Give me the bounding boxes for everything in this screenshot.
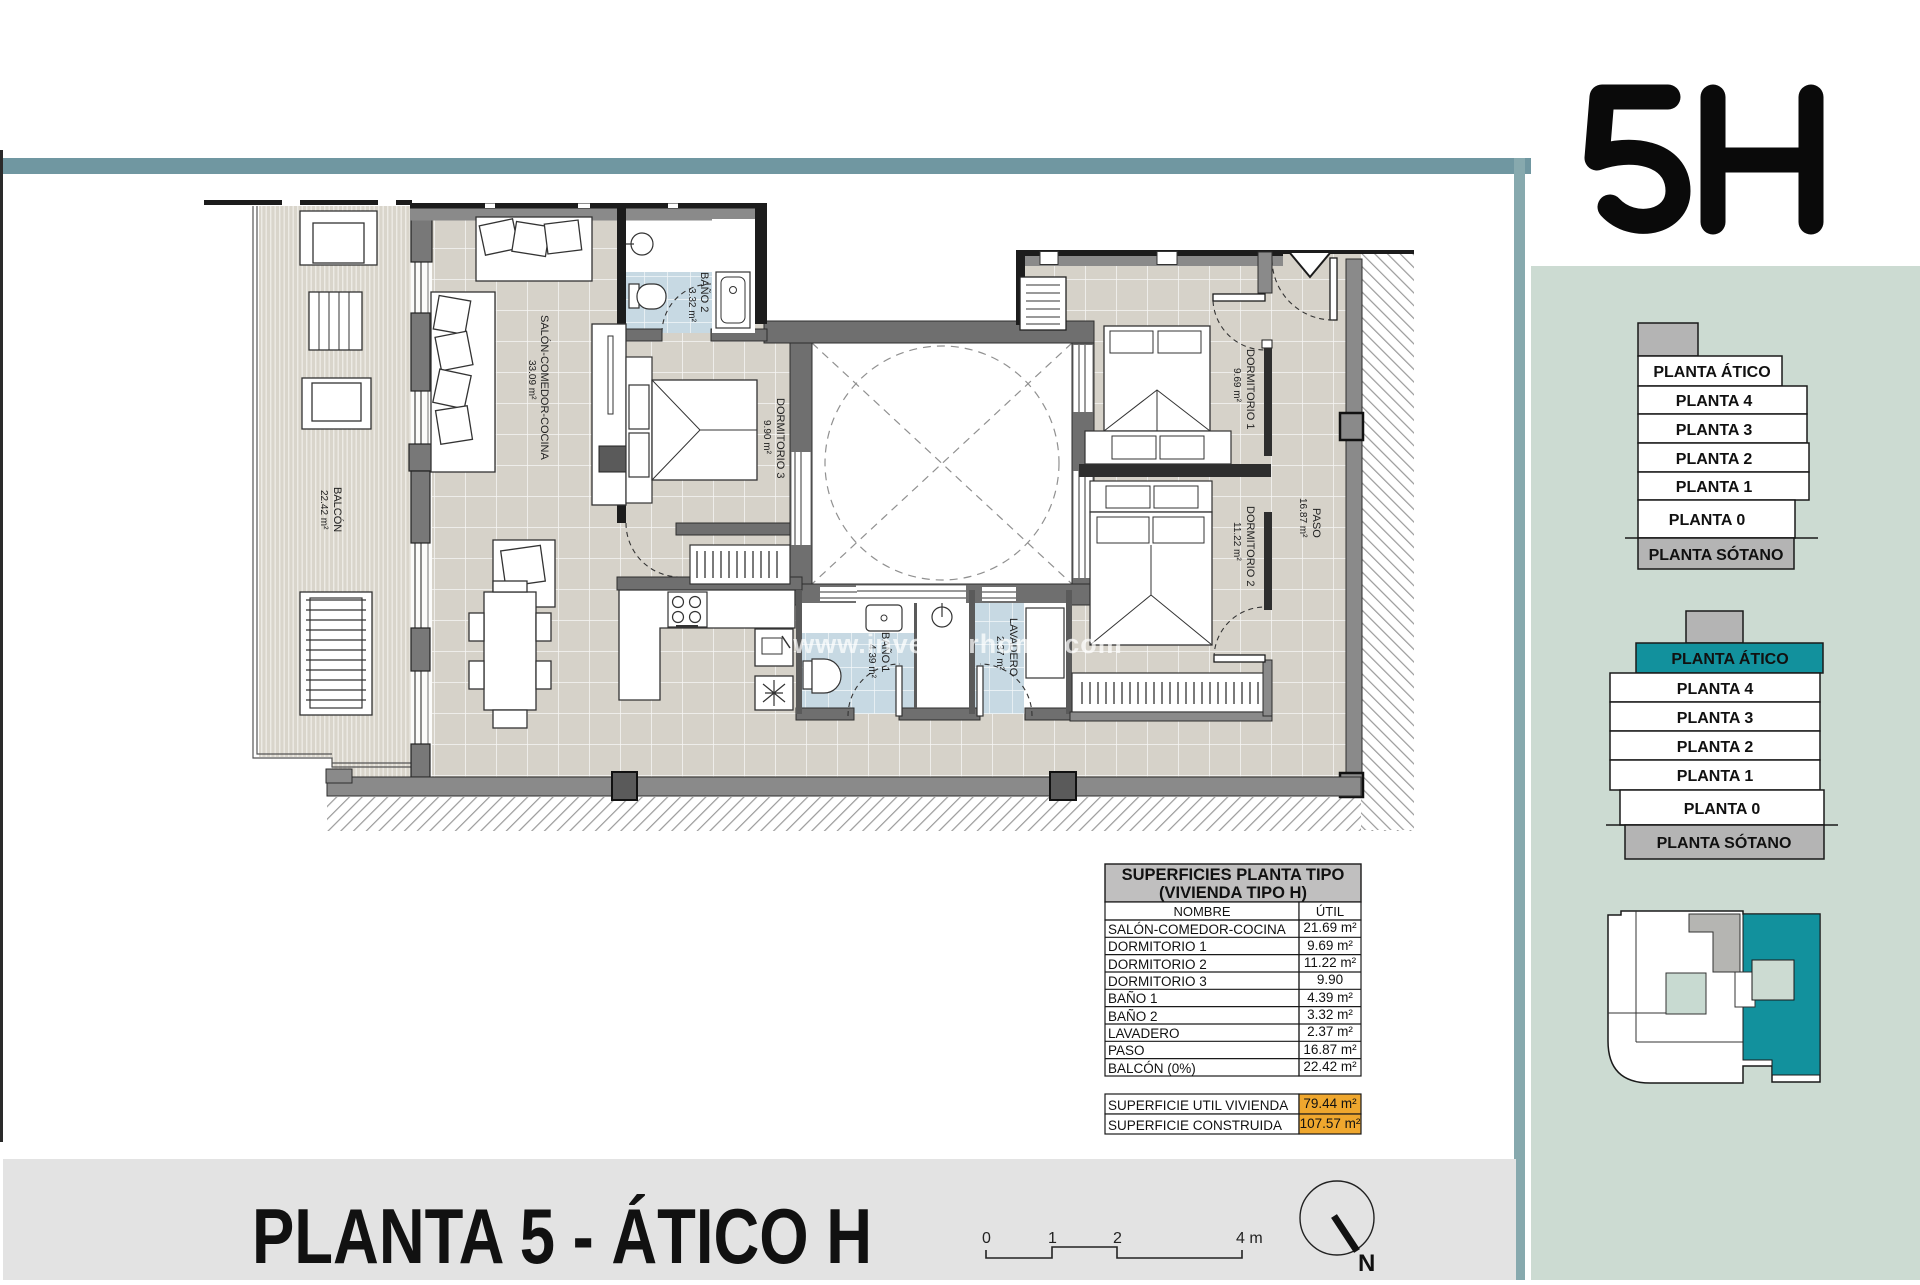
svg-text:9.69 m²: 9.69 m² bbox=[1307, 938, 1353, 953]
svg-text:11.22 m²: 11.22 m² bbox=[1304, 955, 1357, 970]
svg-text:PASO: PASO bbox=[1108, 1043, 1145, 1058]
svg-text:PLANTA 0: PLANTA 0 bbox=[1684, 801, 1761, 818]
svg-text:PLANTA 4: PLANTA 4 bbox=[1677, 681, 1754, 698]
svg-text:PLANTA 3: PLANTA 3 bbox=[1676, 422, 1753, 439]
svg-text:3.32 m²: 3.32 m² bbox=[686, 288, 697, 323]
svg-text:33.09 m²: 33.09 m² bbox=[526, 360, 537, 400]
svg-text:www.investorhome.com: www.investorhome.com bbox=[792, 629, 1123, 659]
svg-text:PLANTA 1: PLANTA 1 bbox=[1677, 768, 1754, 785]
svg-text:9.90: 9.90 bbox=[1317, 972, 1343, 987]
svg-text:22.42 m²: 22.42 m² bbox=[1303, 1059, 1357, 1074]
svg-text:PLANTA 0: PLANTA 0 bbox=[1669, 512, 1746, 529]
svg-text:DORMITORIO 3: DORMITORIO 3 bbox=[774, 398, 786, 478]
svg-text:79.44 m²: 79.44 m² bbox=[1303, 1096, 1357, 1111]
svg-text:DORMITORIO 2: DORMITORIO 2 bbox=[1108, 957, 1207, 972]
svg-text:9.69 m²: 9.69 m² bbox=[1231, 368, 1242, 403]
svg-text:21.69 m²: 21.69 m² bbox=[1303, 920, 1357, 935]
svg-text:16.87 m²: 16.87 m² bbox=[1303, 1042, 1357, 1057]
svg-text:PLANTA 4: PLANTA 4 bbox=[1676, 393, 1753, 410]
svg-text:SUPERFICIES PLANTA TIPO: SUPERFICIES PLANTA TIPO bbox=[1122, 866, 1345, 884]
svg-text:0: 0 bbox=[982, 1230, 991, 1247]
svg-text:ÚTIL: ÚTIL bbox=[1316, 904, 1344, 919]
svg-text:SUPERFICIE UTIL VIVIENDA: SUPERFICIE UTIL VIVIENDA bbox=[1108, 1098, 1288, 1113]
svg-text:PLANTA 1: PLANTA 1 bbox=[1676, 479, 1753, 496]
svg-text:SALÓN-COMEDOR-COCINA: SALÓN-COMEDOR-COCINA bbox=[1108, 922, 1286, 937]
svg-text:DORMITORIO 2: DORMITORIO 2 bbox=[1244, 506, 1256, 586]
svg-text:N: N bbox=[1358, 1250, 1375, 1277]
svg-text:4.39 m²: 4.39 m² bbox=[1307, 990, 1353, 1005]
svg-text:107.57 m²: 107.57 m² bbox=[1300, 1116, 1361, 1131]
svg-text:BAÑO 2: BAÑO 2 bbox=[1108, 1009, 1158, 1024]
svg-text:PLANTA SÓTANO: PLANTA SÓTANO bbox=[1657, 833, 1792, 852]
svg-text:22.42 m²: 22.42 m² bbox=[318, 490, 329, 530]
svg-text:PASO: PASO bbox=[1310, 508, 1322, 538]
svg-text:2.37 m²: 2.37 m² bbox=[1307, 1024, 1353, 1039]
svg-text:BALCÓN (0%): BALCÓN (0%) bbox=[1108, 1061, 1196, 1076]
svg-text:PLANTA ÁTICO: PLANTA ÁTICO bbox=[1671, 649, 1788, 668]
svg-text:BAÑO 2: BAÑO 2 bbox=[698, 272, 711, 312]
svg-text:BAÑO 1: BAÑO 1 bbox=[1108, 991, 1158, 1006]
svg-text:PLANTA 2: PLANTA 2 bbox=[1677, 739, 1754, 756]
svg-text:NOMBRE: NOMBRE bbox=[1173, 904, 1230, 919]
svg-text:11.22 m²: 11.22 m² bbox=[1231, 522, 1242, 561]
svg-text:DORMITORIO 3: DORMITORIO 3 bbox=[1108, 974, 1207, 989]
svg-text:PLANTA ÁTICO: PLANTA ÁTICO bbox=[1653, 362, 1770, 381]
svg-text:PLANTA SÓTANO: PLANTA SÓTANO bbox=[1649, 545, 1784, 564]
svg-text:(VIVIENDA TIPO H): (VIVIENDA TIPO H) bbox=[1159, 884, 1307, 902]
svg-text:9.90 m²: 9.90 m² bbox=[761, 420, 772, 455]
svg-text:DORMITORIO 1: DORMITORIO 1 bbox=[1244, 349, 1256, 429]
svg-text:3.32 m²: 3.32 m² bbox=[1307, 1007, 1353, 1022]
svg-text:BALCÓN: BALCÓN bbox=[331, 487, 344, 532]
svg-text:PLANTA 2: PLANTA 2 bbox=[1676, 451, 1753, 468]
svg-text:4 m: 4 m bbox=[1236, 1230, 1263, 1247]
svg-text:PLANTA 5 - ÁTICO H: PLANTA 5 - ÁTICO H bbox=[252, 1192, 872, 1280]
svg-text:16.87 m²: 16.87 m² bbox=[1297, 498, 1308, 538]
svg-text:LAVADERO: LAVADERO bbox=[1108, 1026, 1180, 1041]
svg-text:DORMITORIO 1: DORMITORIO 1 bbox=[1108, 939, 1207, 954]
svg-text:SALÓN-COMEDOR-COCINA: SALÓN-COMEDOR-COCINA bbox=[538, 315, 551, 461]
svg-text:1: 1 bbox=[1048, 1230, 1057, 1247]
svg-text:SUPERFICIE CONSTRUIDA: SUPERFICIE CONSTRUIDA bbox=[1108, 1118, 1282, 1133]
svg-text:PLANTA 3: PLANTA 3 bbox=[1677, 710, 1754, 727]
svg-text:2: 2 bbox=[1113, 1230, 1122, 1247]
